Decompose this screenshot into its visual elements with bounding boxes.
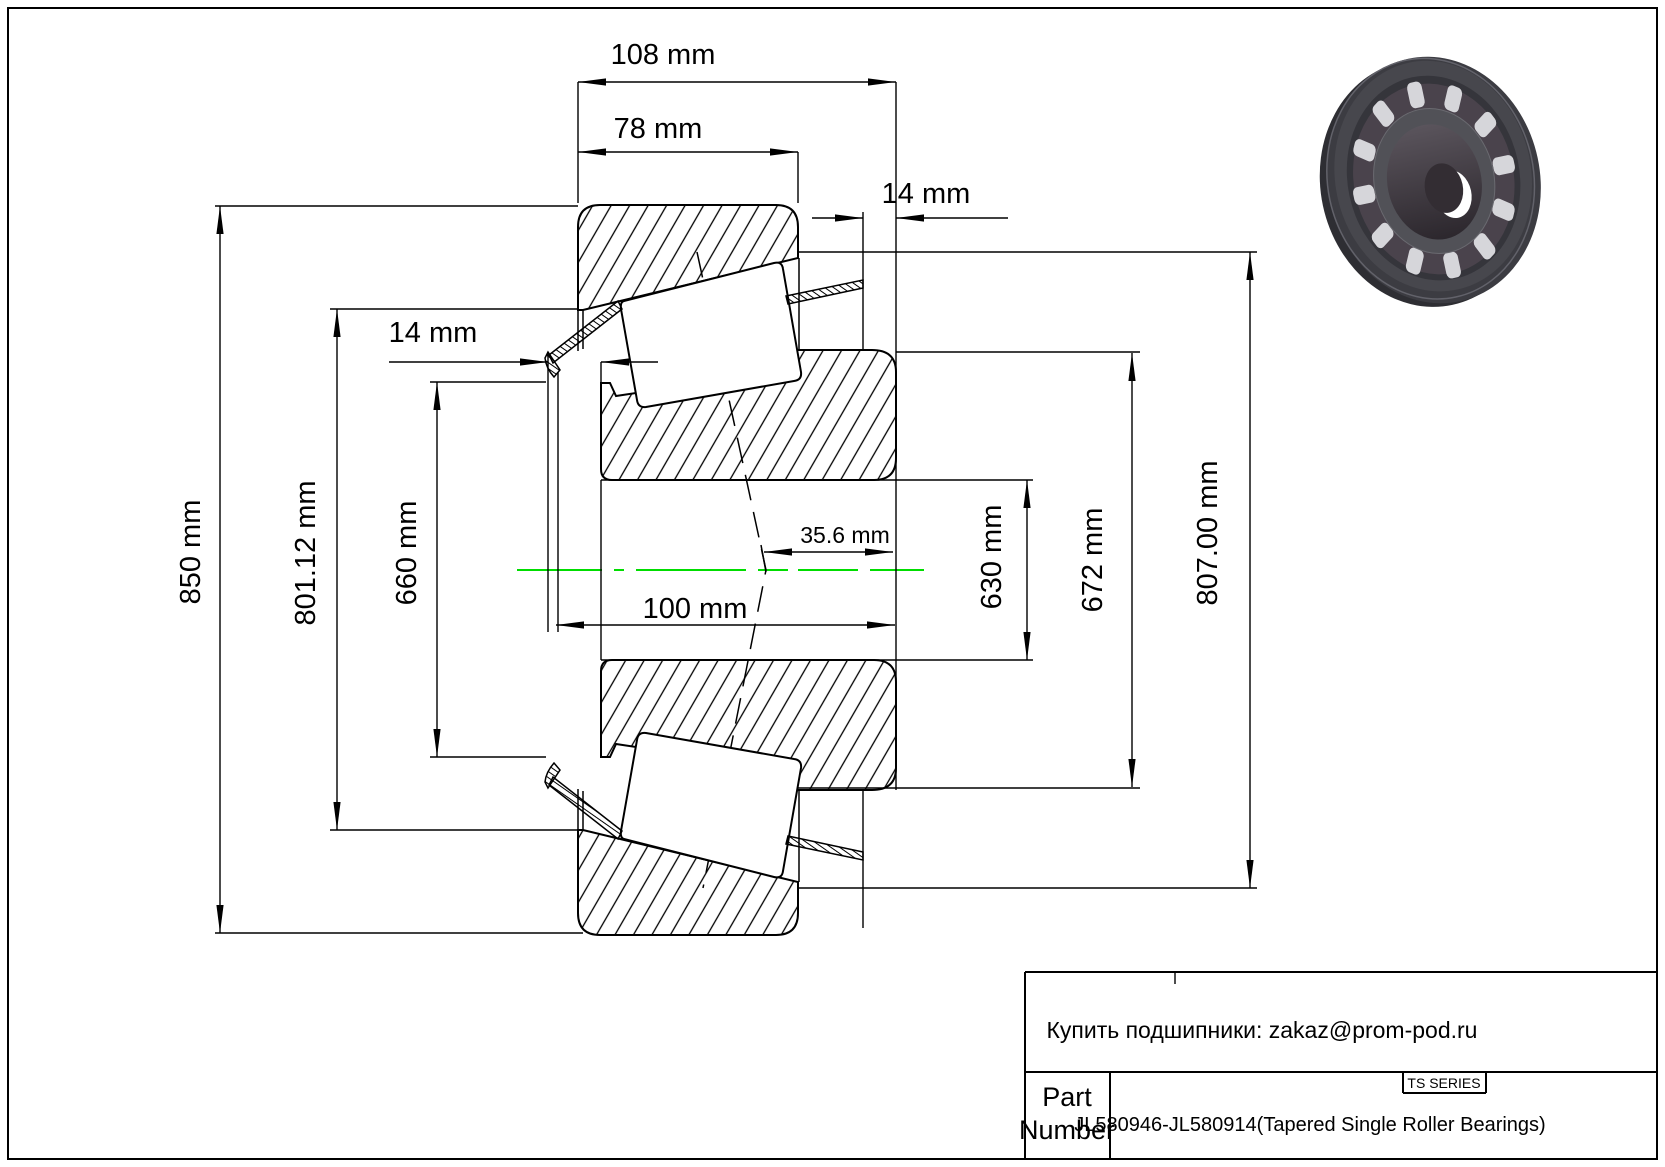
dim-label-cup-width: 78 mm <box>614 113 703 145</box>
bearing-3d-render <box>1297 37 1564 327</box>
contact-text: Купить подшипники: zakaz@prom-pod.ru <box>1047 1017 1478 1043</box>
technical-drawing-canvas: 108 mm 78 mm 14 mm 14 mm 850 mm 801.12 m… <box>0 0 1665 1167</box>
dim-label-total-width: 108 mm <box>611 39 716 71</box>
roller-axis-tick <box>761 545 766 572</box>
dim-label-front-rib: 660 mm <box>391 501 423 606</box>
dim-label-cage-left: 14 mm <box>389 317 478 349</box>
bearing-upper-half <box>545 205 896 480</box>
part-number-value: JL580946-JL580914 <box>1074 1114 1256 1136</box>
dim-label-outer-diameter: 850 mm <box>175 500 207 605</box>
dim-label-bore: 630 mm <box>976 505 1008 610</box>
dim-label-cage-right: 14 mm <box>882 178 971 210</box>
dim-label-effective-center: 35.6 mm <box>800 522 889 548</box>
drawing-page: 108 mm 78 mm 14 mm 14 mm 850 mm 801.12 m… <box>0 0 1665 1167</box>
dim-label-cup-small-od: 807.00 mm <box>1192 460 1224 605</box>
part-descriptor-value: (Tapered Single Roller Bearings) <box>1257 1114 1546 1136</box>
part-label-line1: Part <box>1042 1082 1092 1112</box>
part-number-text: JL580946-JL580914(Tapered Single Roller … <box>1074 1114 1545 1136</box>
bearing-lower-half <box>545 660 896 935</box>
dim-label-cone-width: 100 mm <box>643 593 748 625</box>
dim-label-back-rib: 672 mm <box>1077 508 1109 613</box>
cage-lower-right <box>786 836 863 860</box>
dim-label-raceway-diameter: 801.12 mm <box>290 480 322 625</box>
series-badge: TS SERIES <box>1407 1075 1480 1091</box>
cage-upper-right <box>786 280 863 304</box>
